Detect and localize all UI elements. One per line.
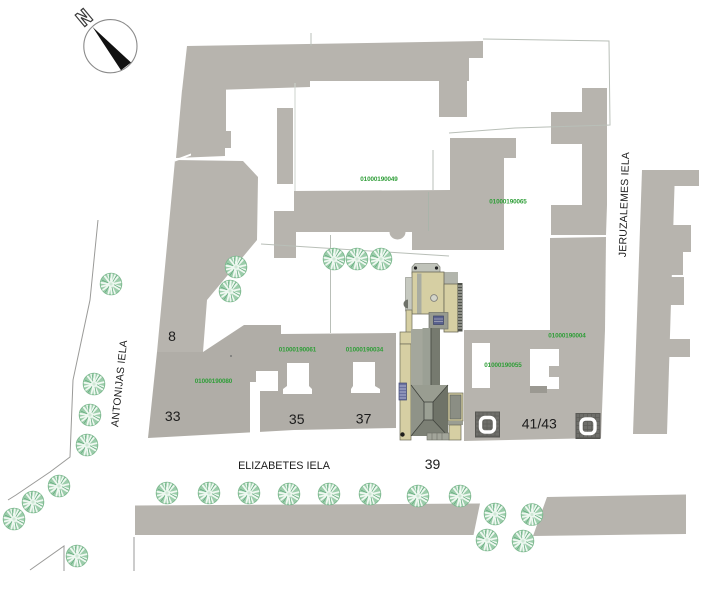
svg-text:JERUZALEMES IELA: JERUZALEMES IELA [617, 152, 632, 258]
svg-text:01000190004: 01000190004 [548, 333, 586, 340]
svg-text:01000190049: 01000190049 [360, 176, 398, 183]
svg-text:ELIZABETES IELA: ELIZABETES IELA [238, 460, 331, 472]
svg-text:35: 35 [289, 411, 305, 427]
svg-text:01000190034: 01000190034 [346, 347, 384, 354]
svg-text:01000190055: 01000190055 [484, 362, 522, 369]
svg-text:37: 37 [356, 411, 372, 427]
svg-text:01000190061: 01000190061 [279, 347, 317, 354]
svg-text:01000190065: 01000190065 [489, 199, 527, 206]
svg-text:ANTONIJAS IELA: ANTONIJAS IELA [109, 340, 130, 428]
svg-text:41/43: 41/43 [522, 416, 557, 432]
svg-text:01000190080: 01000190080 [195, 378, 233, 385]
svg-text:39: 39 [425, 456, 441, 472]
svg-text:33: 33 [165, 408, 181, 424]
svg-text:8: 8 [168, 328, 176, 344]
